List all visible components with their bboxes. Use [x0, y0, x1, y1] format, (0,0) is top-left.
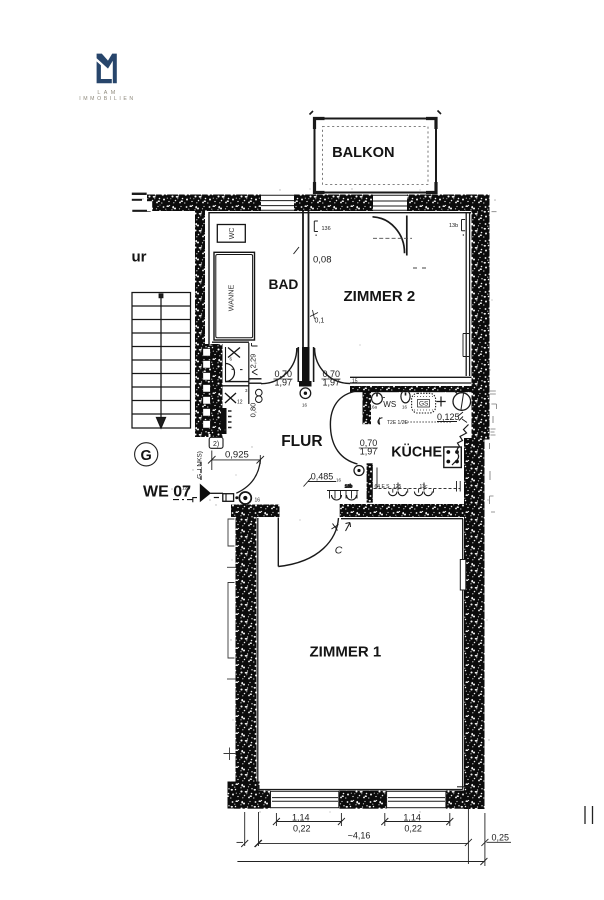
svg-text:16a: 16a: [370, 405, 378, 410]
svg-text:BALKON: BALKON: [332, 145, 394, 161]
svg-text:16: 16: [336, 478, 342, 483]
svg-text:136: 136: [322, 226, 331, 232]
svg-text:WC: WC: [229, 228, 236, 240]
svg-text:0,1: 0,1: [315, 318, 325, 325]
svg-text:12: 12: [237, 400, 243, 406]
svg-text:13b: 13b: [449, 223, 458, 229]
svg-text:KÜCHE: KÜCHE: [391, 444, 442, 461]
svg-text:0,22: 0,22: [293, 823, 311, 833]
svg-text:3: 3: [245, 388, 248, 393]
svg-text:0,80: 0,80: [249, 403, 258, 418]
svg-text:0,25: 0,25: [492, 833, 510, 843]
svg-text:16: 16: [255, 498, 261, 504]
svg-text:G: G: [141, 448, 152, 464]
svg-text:15: 15: [352, 379, 358, 385]
svg-text:0,485: 0,485: [311, 472, 334, 482]
svg-text:0,925: 0,925: [225, 450, 249, 461]
svg-text:C: C: [335, 545, 343, 557]
svg-text:13c: 13c: [420, 484, 429, 490]
svg-text:0,08: 0,08: [313, 255, 332, 266]
svg-text:6: 6: [230, 357, 233, 362]
svg-text:ZIMMER 1: ZIMMER 1: [310, 644, 382, 661]
svg-text:0,22: 0,22: [404, 823, 422, 833]
svg-text:WANNE: WANNE: [226, 285, 235, 312]
svg-text:1,14: 1,14: [292, 813, 310, 823]
svg-text:~4,16: ~4,16: [348, 831, 371, 841]
svg-text:G. LNKS): G. LNKS): [197, 451, 204, 479]
svg-text:WE 07: WE 07: [143, 483, 191, 500]
svg-text:T2E 1/2E: T2E 1/2E: [387, 420, 409, 426]
svg-text:0,125: 0,125: [437, 412, 460, 422]
svg-text:FLUR: FLUR: [281, 433, 322, 450]
svg-text:1,14: 1,14: [403, 813, 421, 823]
svg-text:16: 16: [302, 403, 308, 408]
svg-text:ZIMMER 2: ZIMMER 2: [344, 288, 416, 305]
svg-text:64 E S: 64 E S: [375, 484, 391, 490]
svg-text:IMMOBILIEN: IMMOBILIEN: [79, 96, 136, 102]
svg-text:13b: 13b: [345, 483, 353, 488]
svg-text:BAD: BAD: [269, 277, 299, 292]
svg-text:125: 125: [393, 484, 402, 490]
svg-text:16: 16: [402, 404, 408, 409]
svg-text:GS: GS: [419, 401, 429, 408]
svg-text:2,29: 2,29: [249, 354, 258, 369]
svg-text:WS: WS: [383, 400, 396, 409]
svg-text:2): 2): [213, 441, 219, 448]
svg-text:ur: ur: [132, 249, 147, 266]
